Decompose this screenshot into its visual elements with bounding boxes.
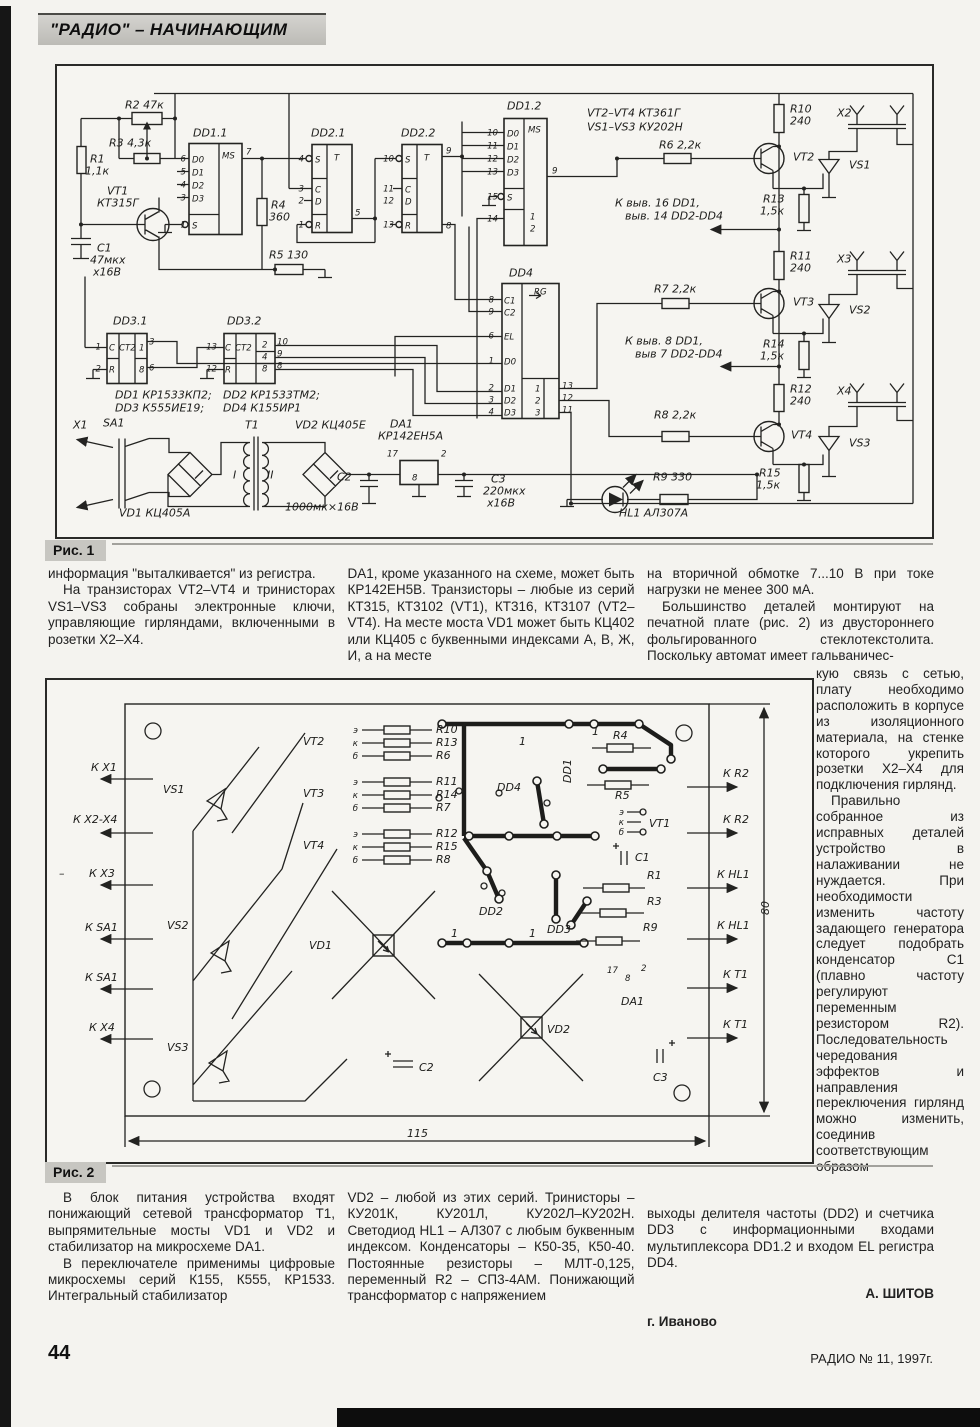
svg-text:DD3 К555ИЕ19;: DD3 К555ИЕ19; — [115, 402, 204, 415]
svg-text:R5: R5 — [615, 789, 630, 802]
svg-text:D2: D2 — [504, 397, 516, 407]
svg-text:выв 7 DD2-DD4: выв 7 DD2-DD4 — [635, 348, 723, 361]
svg-text:R: R — [405, 222, 411, 232]
pcb-outline — [125, 704, 770, 1147]
svg-text:К Т1: К Т1 — [723, 1018, 748, 1031]
svg-text:T: T — [334, 154, 340, 164]
column-1: информация "выталкивается" из регистра. … — [48, 566, 335, 664]
svg-text:4: 4 — [489, 408, 494, 418]
svg-text:8: 8 — [139, 366, 145, 376]
svg-text:II: II — [267, 469, 274, 482]
mounting-holes — [144, 723, 692, 1101]
svg-text:RG: RG — [534, 288, 547, 298]
svg-text:1: 1 — [529, 927, 536, 940]
svg-text:VT1: VT1 — [649, 817, 670, 830]
svg-text:MS: MS — [528, 126, 541, 136]
schematic-labels: R2 47кR11,1кR3 4,3кVT1КТ315ГC147мкхх16ВD… — [72, 99, 871, 520]
svg-text:R3 4,3к: R3 4,3к — [109, 137, 152, 150]
svg-text:R8 2,2к: R8 2,2к — [654, 409, 697, 422]
svg-text:6: 6 — [489, 332, 495, 342]
svg-text:VD1 КЦ405А: VD1 КЦ405А — [119, 507, 190, 520]
svg-text:T: T — [424, 154, 430, 164]
column-3: выходы делителя частоты (DD2) и счетчика… — [647, 1190, 934, 1330]
svg-text:3: 3 — [535, 409, 540, 419]
svg-text:S: S — [315, 156, 321, 166]
svg-text:к: к — [353, 843, 359, 853]
svg-text:10: 10 — [277, 338, 288, 348]
schematic-arrows — [77, 230, 779, 508]
svg-text:VT2: VT2 — [303, 735, 324, 748]
svg-text:5: 5 — [355, 209, 360, 219]
caption-rule-2 — [112, 1165, 933, 1167]
svg-text:DD1: DD1 — [561, 759, 574, 783]
author-name: А. ШИТОВ — [647, 1286, 934, 1302]
svg-text:6: 6 — [181, 155, 187, 165]
fig1-svg: R2 47кR11,1кR3 4,3кVT1КТ315ГC147мкхх16ВD… — [57, 66, 932, 537]
svg-text:1,5к: 1,5к — [760, 350, 784, 363]
svg-text:R12: R12 — [436, 827, 458, 840]
svg-text:R15: R15 — [436, 840, 458, 853]
svg-text:Х3: Х3 — [836, 253, 852, 266]
svg-text:D1: D1 — [192, 169, 204, 179]
svg-text:10: 10 — [383, 155, 394, 165]
svg-text:R9 330: R9 330 — [653, 471, 692, 484]
paragraph: Правильно собранное из исправных деталей… — [816, 793, 964, 1175]
svg-text:HL1 АЛ307А: HL1 АЛ307А — [619, 507, 688, 520]
paragraph: Большинство деталей монтируют на печатно… — [647, 599, 934, 665]
svg-text:R7: R7 — [436, 801, 451, 814]
svg-text:1: 1 — [139, 344, 144, 354]
svg-text:э: э — [619, 808, 624, 818]
svg-text:1: 1 — [535, 385, 540, 395]
svg-text:C2: C2 — [504, 309, 515, 319]
svg-text:14: 14 — [487, 215, 498, 225]
section-title: "РАДИО" – НАЧИНАЮЩИМ — [50, 20, 287, 40]
svg-text:х16В: х16В — [486, 497, 515, 510]
svg-text:R: R — [109, 366, 115, 376]
svg-text:К HL1: К HL1 — [717, 868, 750, 881]
svg-text:1: 1 — [489, 357, 494, 367]
svg-text:115: 115 — [407, 1127, 428, 1140]
svg-text:13: 13 — [487, 168, 498, 178]
svg-text:D3: D3 — [192, 195, 204, 205]
svg-text:КТ315Г: КТ315Г — [97, 197, 140, 210]
svg-text:VT3: VT3 — [793, 296, 814, 309]
svg-text:К выв. 8 DD1,: К выв. 8 DD1, — [625, 335, 703, 348]
svg-text:выв. 14 DD2-DD4: выв. 14 DD2-DD4 — [625, 210, 723, 223]
svg-text:R10: R10 — [436, 723, 458, 736]
svg-text:R8: R8 — [436, 853, 451, 866]
svg-text:VT3: VT3 — [303, 787, 324, 800]
svg-text:R14: R14 — [436, 788, 458, 801]
svg-text:5: 5 — [181, 168, 186, 178]
svg-text:15: 15 — [487, 193, 498, 203]
svg-text:R6: R6 — [436, 749, 451, 762]
svg-text:CT2: CT2 — [235, 344, 252, 354]
svg-text:12: 12 — [206, 365, 217, 375]
paragraph: В блок питания устройства входят понижаю… — [48, 1190, 335, 1256]
svg-text:DD3.1: DD3.1 — [113, 315, 147, 328]
svg-text:VD2: VD2 — [547, 1023, 570, 1036]
svg-text:D3: D3 — [504, 409, 516, 419]
svg-text:DD4: DD4 — [509, 267, 533, 280]
svg-text:8: 8 — [625, 974, 631, 984]
column-1: В блок питания устройства входят понижаю… — [48, 1190, 335, 1330]
svg-text:DD1.1: DD1.1 — [193, 127, 227, 140]
pcb-labels: К Х1К Х2-Х4–К Х3К SA1К SA1К Х4VT2VT3VT4V… — [59, 723, 772, 1140]
svg-text:VS2: VS2 — [167, 919, 189, 932]
svg-text:1: 1 — [530, 213, 535, 223]
paragraph: выходы делителя частоты (DD2) и счетчика… — [647, 1206, 934, 1272]
svg-text:SA1: SA1 — [103, 417, 125, 430]
svg-text:DD1 КР1533КП2;: DD1 КР1533КП2; — [115, 389, 212, 402]
svg-text:VT4: VT4 — [791, 429, 812, 442]
svg-text:R13: R13 — [436, 736, 458, 749]
page-number: 44 — [48, 1342, 70, 1365]
svg-text:D1: D1 — [507, 143, 519, 153]
svg-text:R11: R11 — [436, 775, 458, 788]
svg-text:б: б — [353, 804, 359, 814]
svg-text:D1: D1 — [504, 385, 516, 395]
svg-text:11: 11 — [562, 406, 573, 416]
svg-text:К Х3: К Х3 — [89, 867, 115, 880]
svg-text:13: 13 — [206, 343, 217, 353]
fig2-svg: К Х1К Х2-Х4–К Х3К SA1К SA1К Х4VT2VT3VT4V… — [47, 680, 812, 1162]
svg-text:MS: MS — [222, 152, 235, 162]
svg-text:–: – — [59, 867, 65, 880]
svg-text:DA1: DA1 — [621, 995, 644, 1008]
svg-text:К Х4: К Х4 — [89, 1021, 115, 1034]
svg-text:VS2: VS2 — [849, 304, 871, 317]
svg-text:КР142ЕН5А: КР142ЕН5А — [378, 430, 443, 443]
svg-text:DD2: DD2 — [479, 905, 503, 918]
svg-text:DD4 К155ИР1: DD4 К155ИР1 — [223, 402, 301, 415]
svg-text:б: б — [619, 828, 625, 838]
svg-text:240: 240 — [790, 115, 811, 128]
svg-text:2: 2 — [641, 964, 646, 974]
svg-text:1,5к: 1,5к — [756, 479, 780, 492]
svg-text:17: 17 — [607, 966, 618, 976]
svg-text:1000мк×16В: 1000мк×16В — [285, 501, 359, 514]
figure-1-caption: Рис. 1 — [45, 540, 106, 561]
svg-text:Х4: Х4 — [836, 385, 852, 398]
svg-text:4: 4 — [262, 353, 267, 363]
svg-text:VD1: VD1 — [309, 939, 332, 952]
svg-text:7: 7 — [246, 148, 252, 158]
svg-text:R4: R4 — [613, 729, 628, 742]
svg-text:R: R — [225, 366, 231, 376]
svg-text:10: 10 — [487, 129, 498, 139]
svg-text:к: к — [619, 818, 625, 828]
svg-text:240: 240 — [790, 262, 811, 275]
svg-text:2: 2 — [96, 365, 101, 375]
svg-text:C: C — [315, 186, 321, 196]
article-row-1: информация "выталкивается" из регистра. … — [48, 566, 934, 664]
column-2: DA1, кроме указанного на схеме, может бы… — [348, 566, 635, 664]
svg-text:К выв. 16 DD1,: К выв. 16 DD1, — [615, 197, 700, 210]
svg-text:DD2 КР1533ТМ2;: DD2 КР1533ТМ2; — [223, 389, 320, 402]
svg-text:9: 9 — [489, 308, 494, 318]
svg-text:1: 1 — [592, 725, 599, 738]
svg-text:э: э — [353, 778, 358, 788]
svg-text:С2: С2 — [337, 471, 352, 484]
svg-text:11: 11 — [383, 185, 394, 195]
svg-text:12: 12 — [487, 155, 498, 165]
svg-text:1: 1 — [519, 735, 526, 748]
svg-text:DD2.2: DD2.2 — [401, 127, 435, 140]
svg-text:К R2: К R2 — [723, 813, 749, 826]
figure-2-pcb: К Х1К Х2-Х4–К Х3К SA1К SA1К Х4VT2VT3VT4V… — [45, 678, 814, 1164]
svg-text:К SA1: К SA1 — [85, 971, 118, 984]
svg-text:э: э — [353, 830, 358, 840]
schematic-filled-symbols — [143, 122, 623, 507]
svg-text:9: 9 — [277, 350, 282, 360]
issue-info: РАДИО № 11, 1997г. — [810, 1351, 933, 1366]
svg-text:э: э — [353, 726, 358, 736]
svg-text:D2: D2 — [192, 182, 204, 192]
svg-text:DD2.1: DD2.1 — [311, 127, 345, 140]
svg-text:К Т1: К Т1 — [723, 968, 748, 981]
svg-text:VT2–VT4 КТ361Г: VT2–VT4 КТ361Г — [587, 107, 681, 120]
svg-text:VS1: VS1 — [849, 159, 871, 172]
svg-text:13: 13 — [562, 382, 573, 392]
svg-text:VS3: VS3 — [849, 437, 871, 450]
svg-text:К Х2-Х4: К Х2-Х4 — [73, 813, 117, 826]
svg-text:К Х1: К Х1 — [91, 761, 117, 774]
svg-text:C: C — [225, 344, 231, 354]
svg-text:Т1: Т1 — [245, 419, 259, 432]
article-row-2: В блок питания устройства входят понижаю… — [48, 1190, 934, 1330]
svg-text:12: 12 — [383, 197, 394, 207]
svg-text:к: к — [353, 739, 359, 749]
svg-text:17: 17 — [387, 450, 398, 460]
author-city: г. Иваново — [647, 1314, 934, 1330]
svg-text:S: S — [192, 222, 198, 232]
column-2: VD2 – любой из этих серий. Тринисторы – … — [348, 1190, 635, 1330]
paragraph: DA1, кроме указанного на схеме, может бы… — [348, 566, 635, 664]
svg-text:4: 4 — [181, 181, 186, 191]
svg-text:2: 2 — [441, 450, 446, 460]
svg-text:К SA1: К SA1 — [85, 921, 118, 934]
svg-text:1,5к: 1,5к — [760, 205, 784, 218]
svg-text:9: 9 — [552, 167, 557, 177]
svg-text:S: S — [507, 194, 513, 204]
svg-text:3: 3 — [299, 185, 304, 195]
svg-text:К HL1: К HL1 — [717, 919, 750, 932]
svg-text:R9: R9 — [643, 921, 658, 934]
svg-text:DD4: DD4 — [497, 781, 521, 794]
svg-text:D3: D3 — [507, 169, 519, 179]
svg-text:D: D — [405, 198, 412, 208]
svg-text:D0: D0 — [504, 358, 517, 368]
svg-text:2: 2 — [489, 384, 494, 394]
svg-text:8: 8 — [262, 365, 268, 375]
svg-text:D: D — [315, 198, 322, 208]
svg-text:DD1.2: DD1.2 — [507, 100, 541, 113]
svg-text:Х2: Х2 — [836, 107, 852, 120]
svg-text:1: 1 — [96, 343, 101, 353]
svg-text:R6 2,2к: R6 2,2к — [659, 139, 702, 152]
svg-text:9: 9 — [446, 147, 451, 157]
svg-text:С1: С1 — [635, 851, 650, 864]
svg-text:3: 3 — [149, 338, 154, 348]
svg-text:CT2: CT2 — [119, 344, 136, 354]
svg-text:8: 8 — [277, 362, 283, 372]
svg-text:1: 1 — [299, 221, 304, 231]
svg-text:К R2: К R2 — [723, 767, 749, 780]
svg-text:C: C — [109, 344, 115, 354]
svg-text:2: 2 — [530, 225, 535, 235]
paragraph: информация "выталкивается" из регистра. — [48, 566, 335, 582]
svg-text:1,1к: 1,1к — [85, 165, 109, 178]
svg-text:6: 6 — [149, 364, 155, 374]
svg-text:8: 8 — [446, 222, 452, 232]
svg-text:VS1–VS3 КУ202Н: VS1–VS3 КУ202Н — [587, 121, 683, 134]
svg-text:C: C — [405, 186, 411, 196]
svg-text:1: 1 — [181, 221, 186, 231]
svg-text:R2 47к: R2 47к — [125, 99, 164, 112]
svg-text:2: 2 — [535, 397, 540, 407]
paragraph: VD2 – любой из этих серий. Тринисторы – … — [348, 1190, 635, 1305]
svg-text:13: 13 — [383, 221, 394, 231]
svg-text:D0: D0 — [507, 130, 520, 140]
svg-text:к: к — [353, 791, 359, 801]
svg-text:R3: R3 — [647, 895, 662, 908]
svg-text:1: 1 — [451, 927, 458, 940]
left-edge-bar — [0, 6, 11, 1427]
svg-text:360: 360 — [269, 211, 290, 224]
svg-text:8: 8 — [412, 474, 418, 484]
figure-1-schematic: R2 47кR11,1кR3 4,3кVT1КТ315ГC147мкхх16ВD… — [55, 64, 934, 539]
svg-text:3: 3 — [181, 194, 186, 204]
svg-text:VD2 КЦ405Е: VD2 КЦ405Е — [295, 419, 366, 432]
svg-text:R1: R1 — [647, 869, 662, 882]
svg-text:EL: EL — [504, 333, 514, 343]
svg-text:12: 12 — [562, 394, 573, 404]
section-header: "РАДИО" – НАЧИНАЮЩИМ — [38, 13, 326, 45]
svg-text:VT4: VT4 — [303, 839, 324, 852]
paragraph: кую связь с сетью, плату необходимо расп… — [816, 666, 964, 793]
svg-text:11: 11 — [487, 142, 498, 152]
svg-text:б: б — [353, 752, 359, 762]
svg-text:D2: D2 — [507, 156, 519, 166]
bottom-edge-bar — [337, 1408, 980, 1427]
svg-text:4: 4 — [299, 155, 304, 165]
paragraph: На транзисторах VT2–VT4 и тринисторах VS… — [48, 582, 335, 648]
svg-text:б: б — [353, 856, 359, 866]
svg-text:2: 2 — [299, 197, 304, 207]
svg-text:R5 130: R5 130 — [269, 249, 308, 262]
svg-text:С2: С2 — [419, 1061, 434, 1074]
pcb-components — [193, 726, 675, 1101]
svg-text:Х1: Х1 — [72, 419, 88, 432]
svg-text:8: 8 — [489, 296, 495, 306]
paragraph: на вторичной обмотке 7...10 В при токе н… — [647, 566, 934, 599]
svg-text:х16В: х16В — [92, 266, 121, 279]
svg-text:240: 240 — [790, 395, 811, 408]
paragraph: В переключателе применимы цифровые микро… — [48, 1256, 335, 1305]
svg-text:C1: C1 — [504, 297, 515, 307]
svg-text:2: 2 — [262, 341, 267, 351]
svg-text:S: S — [405, 156, 411, 166]
svg-text:3: 3 — [489, 396, 494, 406]
column-3: на вторичной обмотке 7...10 В при токе н… — [647, 566, 934, 664]
svg-text:VS1: VS1 — [163, 783, 185, 796]
svg-text:С3: С3 — [653, 1071, 668, 1084]
svg-text:VS3: VS3 — [167, 1041, 189, 1054]
svg-text:R: R — [315, 222, 321, 232]
svg-text:DD3.2: DD3.2 — [227, 315, 261, 328]
svg-text:VT2: VT2 — [793, 151, 814, 164]
side-column: кую связь с сетью, плату необходимо расп… — [816, 666, 964, 1175]
svg-text:R7 2,2к: R7 2,2к — [654, 283, 697, 296]
figure-2-caption: Рис. 2 — [45, 1162, 106, 1183]
svg-text:I: I — [233, 469, 236, 482]
svg-text:80: 80 — [759, 901, 772, 915]
svg-text:D0: D0 — [192, 156, 205, 166]
svg-text:DD3: DD3 — [547, 923, 571, 936]
caption-rule-1 — [112, 543, 933, 545]
